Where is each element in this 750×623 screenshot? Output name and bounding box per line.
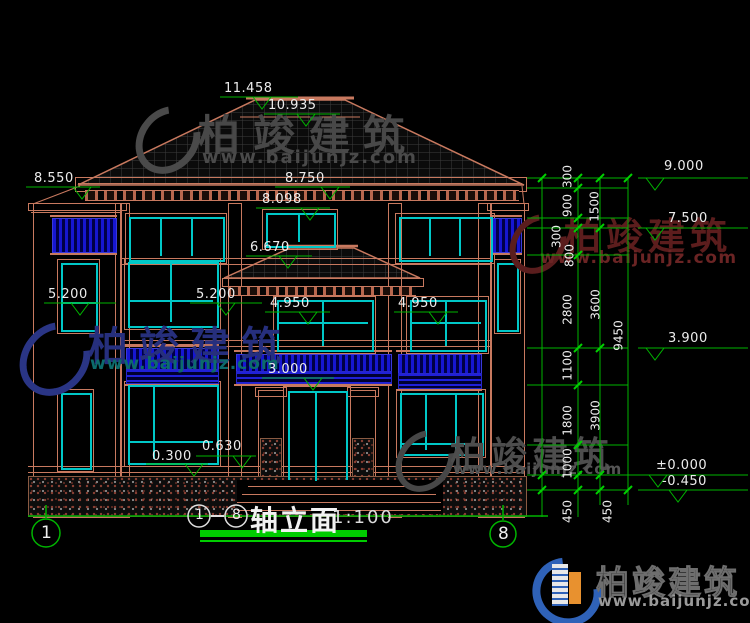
axis-bubble-left: 1 xyxy=(41,523,52,543)
elevation-label-roof-edge: 10.935 xyxy=(268,98,317,113)
dim-col2-1500: 1500 xyxy=(588,177,601,237)
elevation-label-left-parapet: 8.550 xyxy=(34,171,74,186)
cad-elevation-drawing: 柏竣建筑 www.baijunjz.com 柏竣建筑 www.baijunjz.… xyxy=(0,0,750,623)
right-level-3900: 3.900 xyxy=(668,331,708,346)
elevation-label-lintel-mid: 5.200 xyxy=(196,287,236,302)
dim-col1-2800: 2800 xyxy=(561,280,574,340)
dim-overall-9450: 9450 xyxy=(612,306,625,366)
elevation-label-eave: 8.750 xyxy=(285,171,325,186)
elevation-label-sill-bay-right: 4.950 xyxy=(398,296,438,311)
dim-col1-450: 450 xyxy=(561,482,574,542)
elevation-label-sill-upper: 0.630 xyxy=(202,439,242,454)
right-level-7500: 7.500 xyxy=(668,211,708,226)
dim-col1-300b: 300 xyxy=(550,207,563,267)
dim-col1-1100: 1100 xyxy=(561,336,574,396)
elevation-label-door-top: 3.000 xyxy=(268,362,308,377)
dim-col1-800: 800 xyxy=(563,226,576,286)
elevation-label-porch-eave: 6.670 xyxy=(250,240,290,255)
dim-col2-3900: 3900 xyxy=(589,386,602,446)
elevation-label-lintel-left: 5.200 xyxy=(48,287,88,302)
right-level-0000: ±0.000 xyxy=(656,458,707,473)
elevation-label-sill-bay-left: 4.950 xyxy=(270,296,310,311)
elevation-label-sill-lower: 0.300 xyxy=(152,449,192,464)
axis-bubble-right: 8 xyxy=(498,524,509,544)
drawing-scale: 1:100 xyxy=(332,507,394,528)
dimension-layer xyxy=(0,0,750,623)
dim-col2-3600: 3600 xyxy=(589,275,602,335)
dim-col2-450: 450 xyxy=(601,482,614,542)
title-axis-to: 8 xyxy=(232,507,241,523)
drawing-title: 轴立面 xyxy=(250,499,340,539)
right-level-m0450: -0.450 xyxy=(662,474,707,489)
elevation-label-ridge: 11.458 xyxy=(224,81,273,96)
right-level-9000: 9.000 xyxy=(664,159,704,174)
elevation-label-attic-window: 8.098 xyxy=(262,192,302,207)
level-markers-left xyxy=(26,97,458,476)
title-axis-from: 1 xyxy=(195,507,204,523)
